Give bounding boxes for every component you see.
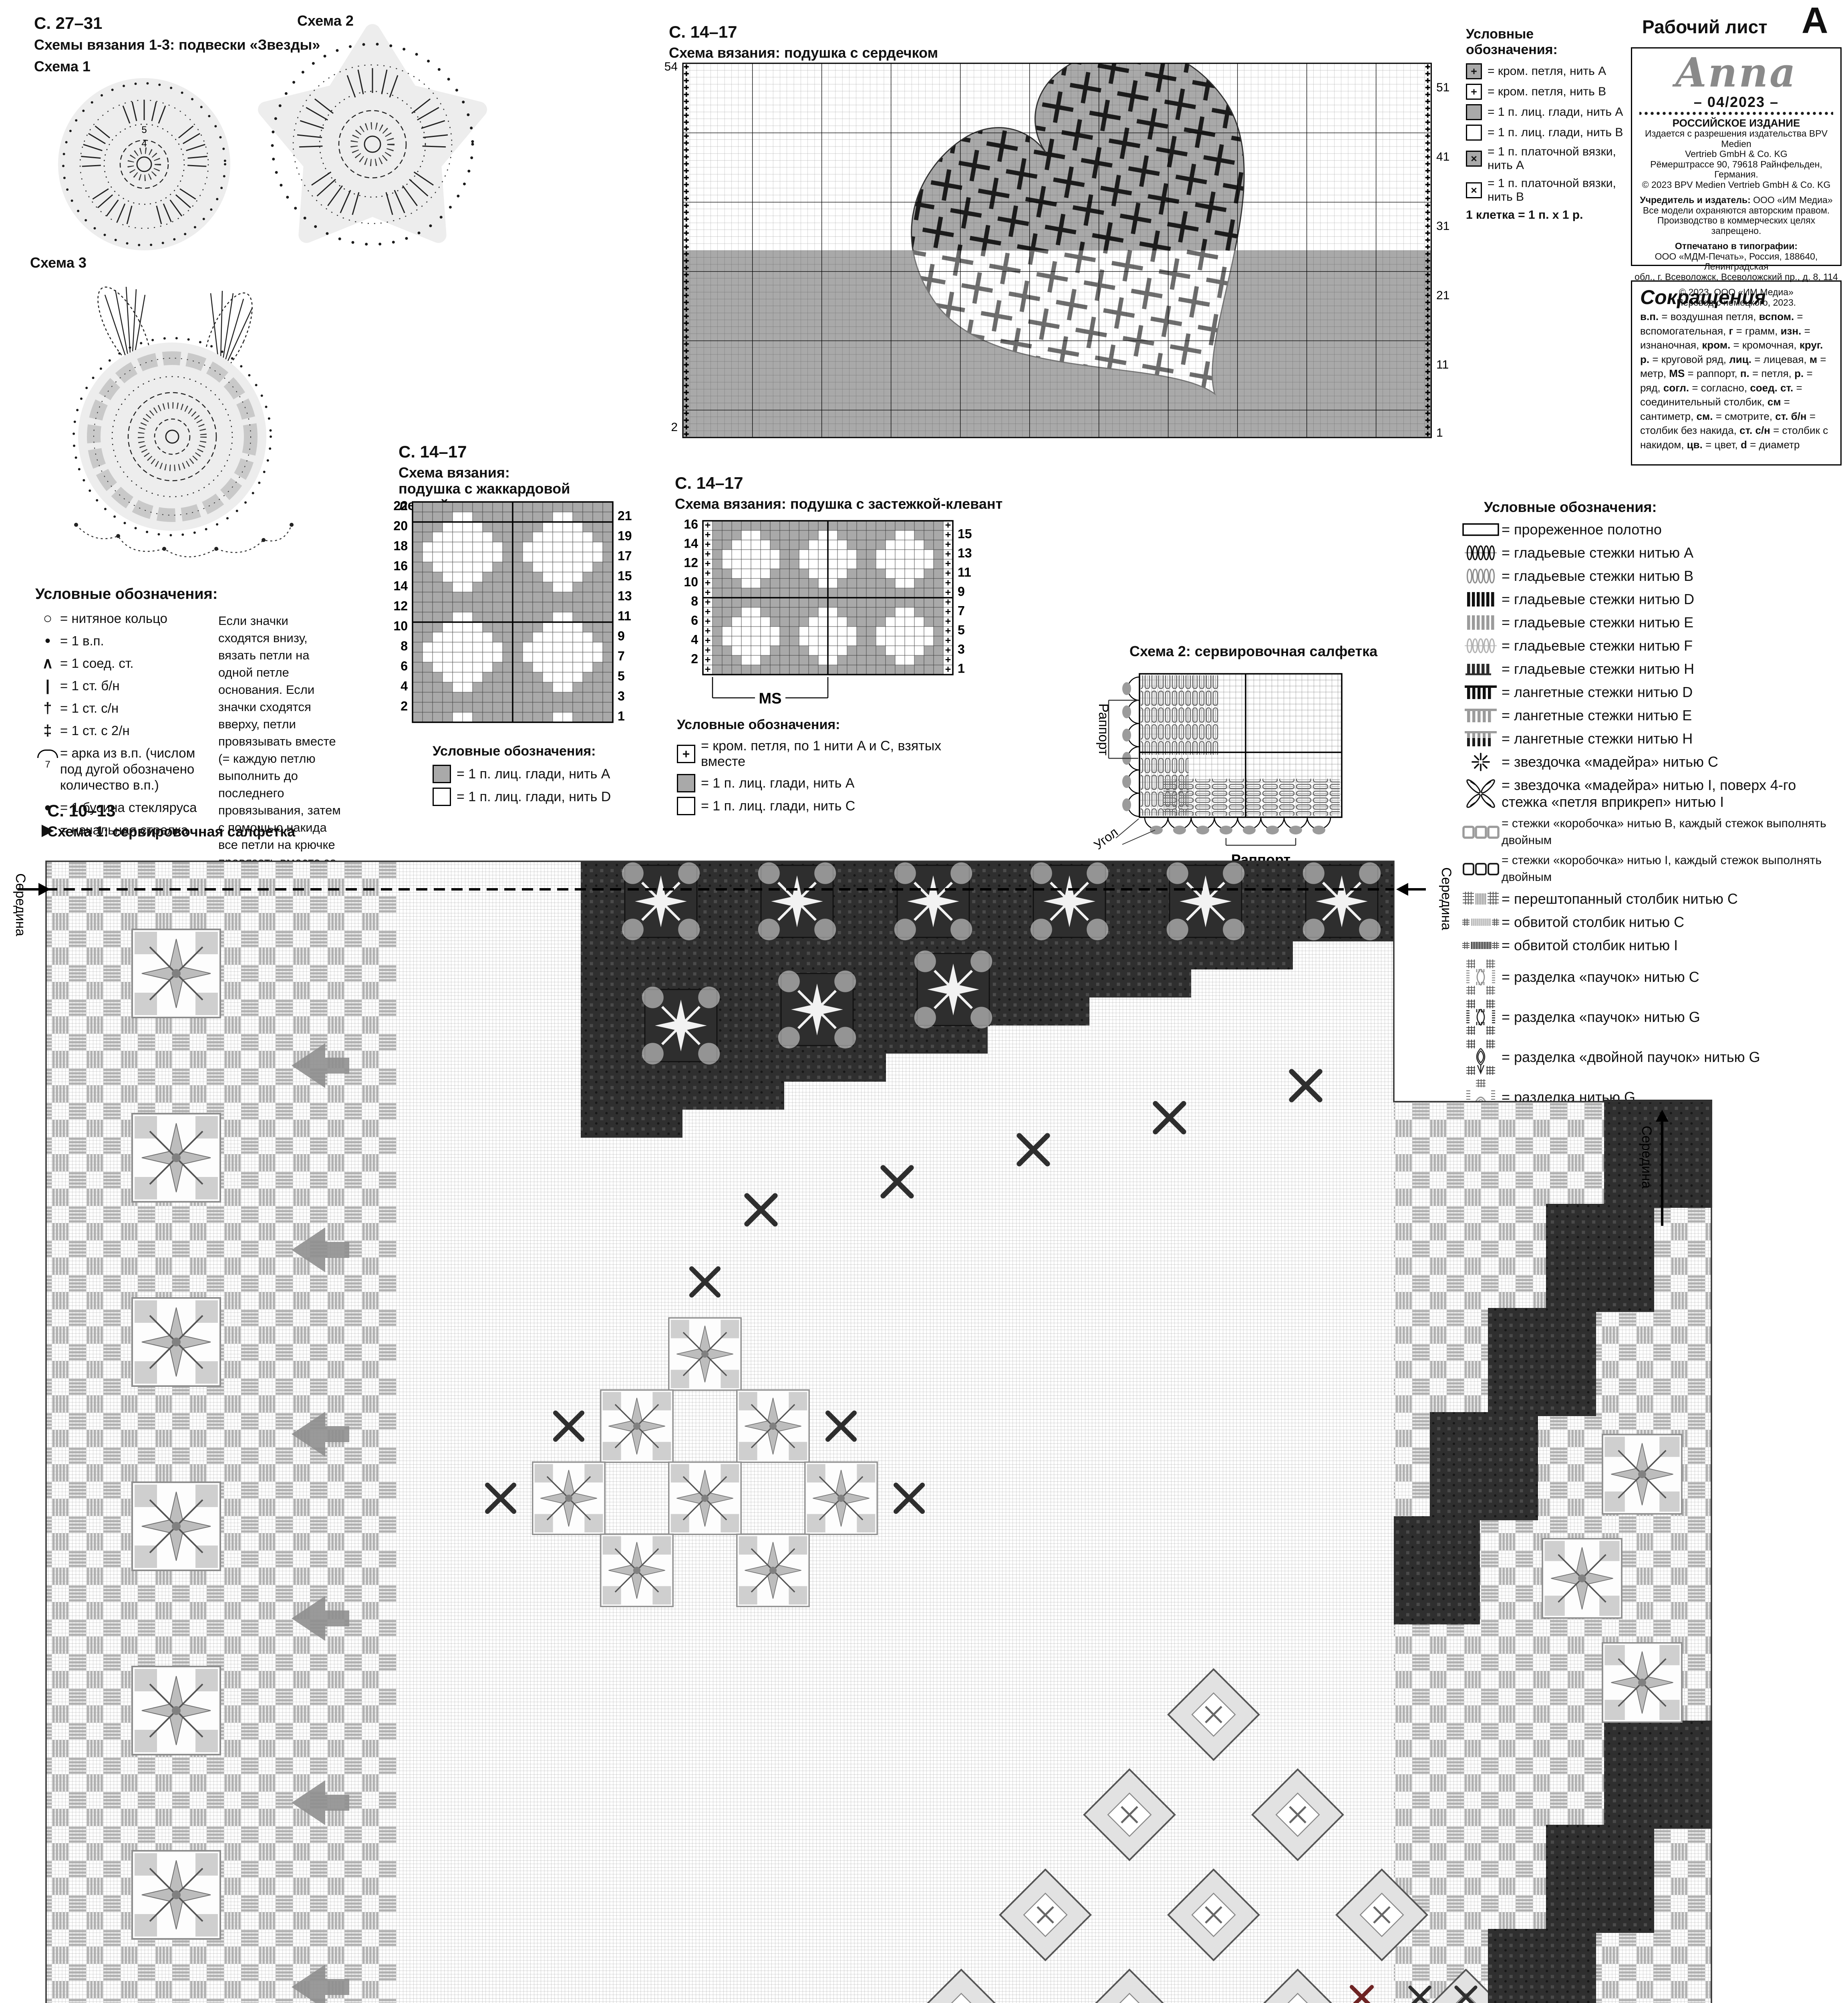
satin-stitch-A-icon (1460, 544, 1502, 562)
svg-text:2: 2 (671, 421, 678, 434)
single-crochet-icon: | (35, 678, 60, 694)
svg-text:Середина: Середина (1439, 867, 1454, 930)
garter-A-icon: × (1466, 151, 1482, 167)
svg-text:2: 2 (691, 652, 698, 666)
abbreviations-text: в.п. = воздушная петля, вспом. = вспомог… (1640, 310, 1832, 452)
corner-label: Угол (1091, 825, 1121, 852)
imprint-line: Рёмерштрассе 90, 79618 Райнфельден, Герм… (1632, 159, 1840, 180)
legend-item: += кром. петля, по 1 нити A и C, взятых … (677, 738, 981, 770)
clevant-title: Схема вязания: подушка с застежкой-клева… (675, 496, 1003, 512)
svg-text:14: 14 (684, 536, 698, 551)
abbreviations-box: Сокращения в.п. = воздушная петля, вспом… (1631, 280, 1842, 465)
ms-label: MS (759, 690, 782, 707)
crochet-diagram-star-2 (244, 24, 501, 264)
madeira-star-I-icon (1460, 775, 1502, 812)
svg-text:13: 13 (618, 589, 632, 603)
worksheet-label: Рабочий лист (1642, 16, 1767, 38)
svg-text:11: 11 (958, 565, 971, 580)
jacquard-pages: С. 14–17 (399, 443, 467, 461)
blanket-stitch-E-icon (1460, 706, 1502, 725)
svg-text:11: 11 (618, 609, 631, 623)
svg-text:18: 18 (393, 539, 408, 553)
thread-D-icon (433, 788, 451, 806)
legend-item: ∧= 1 соед. ст. (35, 655, 211, 671)
blanket-stitch-D-icon (1460, 683, 1502, 701)
corner-leaders (1116, 819, 1155, 844)
satin-stitch-E-icon (1460, 613, 1502, 632)
svg-text:17: 17 (618, 549, 632, 563)
ring-icon: ○ (35, 611, 60, 627)
garter-B-icon: × (1466, 182, 1482, 198)
worksheet-page: С. 27–31 Схемы вязания 1-3: подвески «Зв… (0, 0, 1848, 2003)
svg-text:12: 12 (393, 599, 408, 613)
svg-text:6: 6 (401, 659, 408, 673)
legend-item: = 1 п. лиц. глади, нить B (1466, 125, 1626, 141)
svg-text:9: 9 (958, 584, 965, 599)
svg-text:+: + (945, 664, 951, 675)
heart-legend: Условные обозначения: += кром. петля, ни… (1466, 26, 1626, 222)
embroidery-legend-title: Условные обозначения: (1484, 499, 1846, 516)
satin-stitch-H-icon (1460, 660, 1502, 678)
imprint-line: ООО «МДМ-Печать», Россия, 188640, Ленинг… (1632, 252, 1840, 272)
svg-text:19: 19 (618, 529, 632, 543)
svg-text:5: 5 (618, 669, 625, 683)
legend-item: = звездочка «мадейра» нитью I, поверх 4-… (1460, 775, 1846, 812)
dotted-divider (1639, 111, 1833, 116)
svg-text:15: 15 (958, 527, 972, 541)
satin-stitch-D-icon (1460, 590, 1502, 609)
legend-item: = звездочка «мадейра» нитью C (1460, 752, 1846, 772)
svg-text:5: 5 (141, 125, 147, 135)
legend-item: ○= нитяное кольцо (35, 611, 211, 627)
svg-text:8: 8 (691, 594, 698, 609)
svg-text:10: 10 (393, 619, 408, 633)
issue-number: – 04/2023 – (1632, 94, 1840, 110)
legend-item: = гладьевые стежки нитью A (1460, 543, 1846, 563)
legend-item: = гладьевые стежки нитью B (1460, 566, 1846, 586)
legend-item: = прореженное полотно (1460, 520, 1846, 540)
svg-text:22: 22 (393, 499, 408, 513)
imprint-line: Учредитель и издатель: ООО «ИМ Медиа» (1632, 195, 1840, 206)
thread-A-icon (433, 765, 451, 783)
legend-item: = лангетные стежки нитью E (1460, 705, 1846, 725)
thread-C-icon (677, 797, 695, 815)
legend-item: = 1 п. лиц. глади, нить A (433, 765, 611, 783)
svg-text:54: 54 (664, 60, 678, 73)
svg-text:1: 1 (618, 709, 625, 723)
treble-crochet-icon: ‡ (35, 723, 60, 739)
chain-stitch-icon: • (35, 633, 60, 649)
imprint-line: Отпечатано в типографии: (1632, 241, 1840, 252)
legend-item: = гладьевые стежки нитью E (1460, 613, 1846, 633)
clevant-legend: Условные обозначения: += кром. петля, по… (677, 717, 981, 820)
legend-item: = гладьевые стежки нитью D (1460, 589, 1846, 609)
svg-text:16: 16 (684, 517, 698, 532)
svg-text:6: 6 (691, 613, 698, 628)
rapport-left-label: Раппорт (1096, 703, 1111, 756)
heart-cell-note: 1 клетка = 1 п. х 1 р. (1466, 208, 1626, 222)
open-fabric-icon (1460, 520, 1502, 539)
double-crochet-icon: † (35, 700, 60, 716)
legend-item: 7 = арка из в.п. (числом под дугой обозн… (35, 745, 211, 793)
jacquard-legend-title: Условные обозначения: (433, 744, 611, 759)
svg-text:7: 7 (958, 604, 965, 618)
schema2-chart: Раппорт Раппорт Угол (1081, 657, 1370, 881)
svg-text:8: 8 (401, 639, 408, 653)
schema1-chart: Середина Середина Середина Середина (0, 853, 1848, 2003)
imprint-line: Производство в коммерческих целях запрещ… (1632, 216, 1840, 236)
imprint-line: Издается с разрешения издательства BPV M… (1632, 129, 1840, 149)
crochet-diagram-flower-3 (4, 268, 356, 565)
worksheet-letter: A (1802, 4, 1828, 37)
svg-text:9: 9 (618, 629, 625, 643)
heart-chart: 54 2 51 41 31 21 11 1 (661, 20, 1466, 449)
svg-text:4: 4 (691, 633, 698, 647)
imprint-line: Vertrieb GmbH & Co. KG (1632, 149, 1840, 159)
crochet-diagram-star-1: 5 4 (24, 68, 264, 256)
rapport-bracket-bottom (1226, 838, 1296, 845)
edition-label: РОССИЙСКОЕ ИЗДАНИЕ (1632, 117, 1840, 129)
legend-item: += кром. петля, нить B (1466, 84, 1626, 100)
jacquard-legend: Условные обозначения: = 1 п. лиц. глади,… (433, 744, 611, 810)
svg-text:13: 13 (958, 546, 972, 560)
satin-stitch-B-icon (1460, 567, 1502, 585)
slip-stitch-icon: ∧ (35, 655, 60, 671)
edge-stitch-B-icon: + (1466, 84, 1482, 100)
center-marker-left: Середина (13, 873, 50, 936)
legend-item: = стежки «коробочка» нитью B, каждый сте… (1460, 815, 1846, 849)
svg-text:15: 15 (618, 569, 632, 583)
imprint-line: © 2023 BPV Medien Vertrieb GmbH & Co. KG (1632, 180, 1840, 190)
legend-item: += кром. петля, нить A (1466, 63, 1626, 79)
schema1-title: Схема 1: сервировочная салфетка (47, 824, 295, 840)
clevant-pages: С. 14–17 (675, 474, 743, 492)
svg-text:20: 20 (393, 519, 408, 533)
legend-item: |= 1 ст. б/н (35, 678, 211, 694)
box-stitch-B-icon (1460, 823, 1502, 841)
svg-text:14: 14 (393, 579, 408, 593)
legend-item: = лангетные стежки нитью H (1460, 729, 1846, 749)
svg-text:2: 2 (401, 699, 408, 713)
svg-text:Середина: Середина (13, 873, 28, 936)
anna-logo: Anna (1632, 51, 1840, 94)
edge-stitch-AC-icon: + (677, 745, 695, 763)
abbreviations-title: Сокращения (1640, 286, 1832, 309)
schema1-pages: С. 10–13 (47, 802, 115, 820)
crochet-note: Если значки сходятся внизу, вязать петли… (218, 612, 342, 888)
stockinette-B-icon (1466, 125, 1482, 141)
svg-text:4: 4 (401, 679, 408, 693)
crochet-pages: С. 27–31 (34, 14, 102, 32)
legend-item: = гладьевые стежки нитью H (1460, 659, 1846, 679)
legend-item: †= 1 ст. с/н (35, 700, 211, 716)
svg-text:3: 3 (958, 642, 965, 657)
legend-item: = гладьевые стежки нитью F (1460, 636, 1846, 656)
heart-legend-title: Условные обозначения: (1466, 26, 1626, 58)
svg-text:11: 11 (1436, 358, 1449, 371)
jacquard-chart: 22212019181716151413121110987654321 (380, 497, 645, 737)
legend-item: = 1 п. лиц. глади, нить C (677, 797, 981, 815)
svg-text:7: 7 (618, 649, 625, 663)
svg-text:12: 12 (684, 556, 698, 570)
svg-text:31: 31 (1436, 220, 1449, 233)
clevant-chart: ++16++15++14++13++12++11++10++9++8++7++6… (665, 515, 1005, 715)
stockinette-A-icon (1466, 104, 1482, 120)
svg-text:4: 4 (141, 138, 147, 149)
legend-item: = лангетные стежки нитью D (1460, 682, 1846, 702)
thread-A-icon (677, 774, 695, 792)
legend-item: •= 1 в.п. (35, 633, 211, 649)
imprint-line: Все модели охраняются авторским правом. (1632, 206, 1840, 216)
svg-text:21: 21 (618, 509, 632, 523)
edge-stitch-A-icon: + (1466, 63, 1482, 79)
legend-item: = 1 п. лиц. глади, нить A (1466, 104, 1626, 120)
center-marker-top-right: Середина (1396, 867, 1454, 930)
svg-text:5: 5 (958, 623, 965, 637)
svg-text:51: 51 (1436, 81, 1449, 94)
svg-text:+: + (705, 664, 711, 675)
svg-text:Середина: Середина (1639, 1126, 1654, 1189)
satin-stitch-F-icon (1460, 637, 1502, 655)
svg-text:3: 3 (618, 689, 625, 703)
svg-text:16: 16 (393, 559, 408, 573)
svg-text:21: 21 (1436, 289, 1449, 302)
imprint-box: Anna – 04/2023 – РОССИЙСКОЕ ИЗДАНИЕ Изда… (1631, 47, 1842, 266)
legend-item: ‡= 1 ст. с 2/н (35, 723, 211, 739)
legend-item: = 1 п. лиц. глади, нить A (677, 774, 981, 792)
svg-text:1: 1 (1436, 426, 1443, 439)
legend-item: ×= 1 п. платочной вязки, нить A (1466, 145, 1626, 172)
crochet-legend-title: Условные обозначения: (35, 586, 217, 603)
clevant-legend-title: Условные обозначения: (677, 717, 981, 733)
legend-item: ×= 1 п. платочной вязки, нить B (1466, 177, 1626, 204)
svg-text:41: 41 (1436, 150, 1449, 163)
svg-text:1: 1 (958, 661, 965, 676)
svg-text:10: 10 (684, 575, 698, 589)
chain-arc-icon: 7 (35, 745, 60, 768)
blanket-stitch-H-icon (1460, 729, 1502, 748)
madeira-star-C-icon (1460, 753, 1502, 771)
legend-item: = 1 п. лиц. глади, нить D (433, 788, 611, 806)
